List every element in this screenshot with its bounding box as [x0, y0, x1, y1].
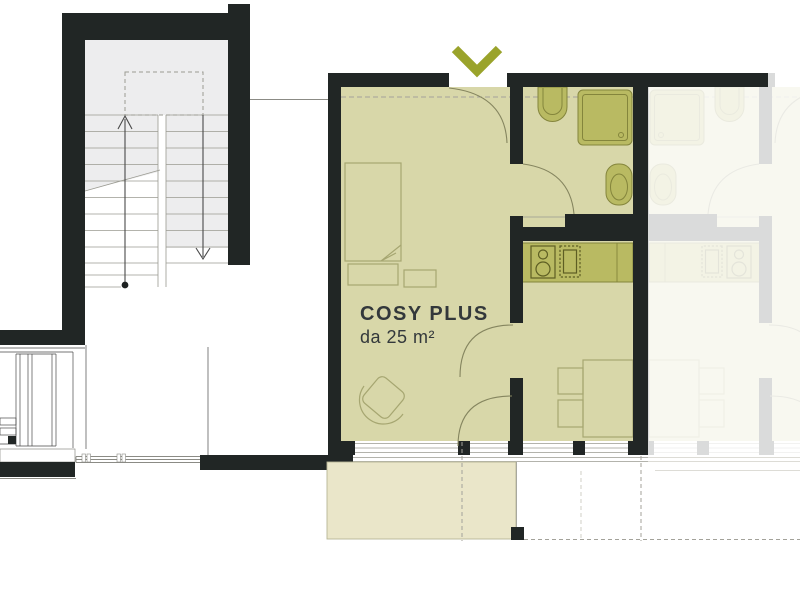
balcony-post — [511, 527, 524, 540]
neighbor-unit-faded — [634, 73, 800, 455]
unit-balcony — [327, 462, 516, 539]
balcony — [327, 442, 800, 541]
floor-plan-page: COSY PLUS da 25 m² — [0, 0, 800, 600]
floor-plan-svg: COSY PLUS da 25 m² — [0, 0, 800, 600]
highlighted-unit[interactable] — [328, 73, 648, 455]
entrance-chevron-icon — [455, 49, 499, 71]
staircase — [62, 4, 328, 345]
neighbor-top-wall — [648, 73, 768, 87]
elevator-shaft — [0, 330, 208, 462]
unit-name-label: COSY PLUS — [360, 303, 489, 325]
unit-size-label: da 25 m² — [360, 327, 435, 347]
